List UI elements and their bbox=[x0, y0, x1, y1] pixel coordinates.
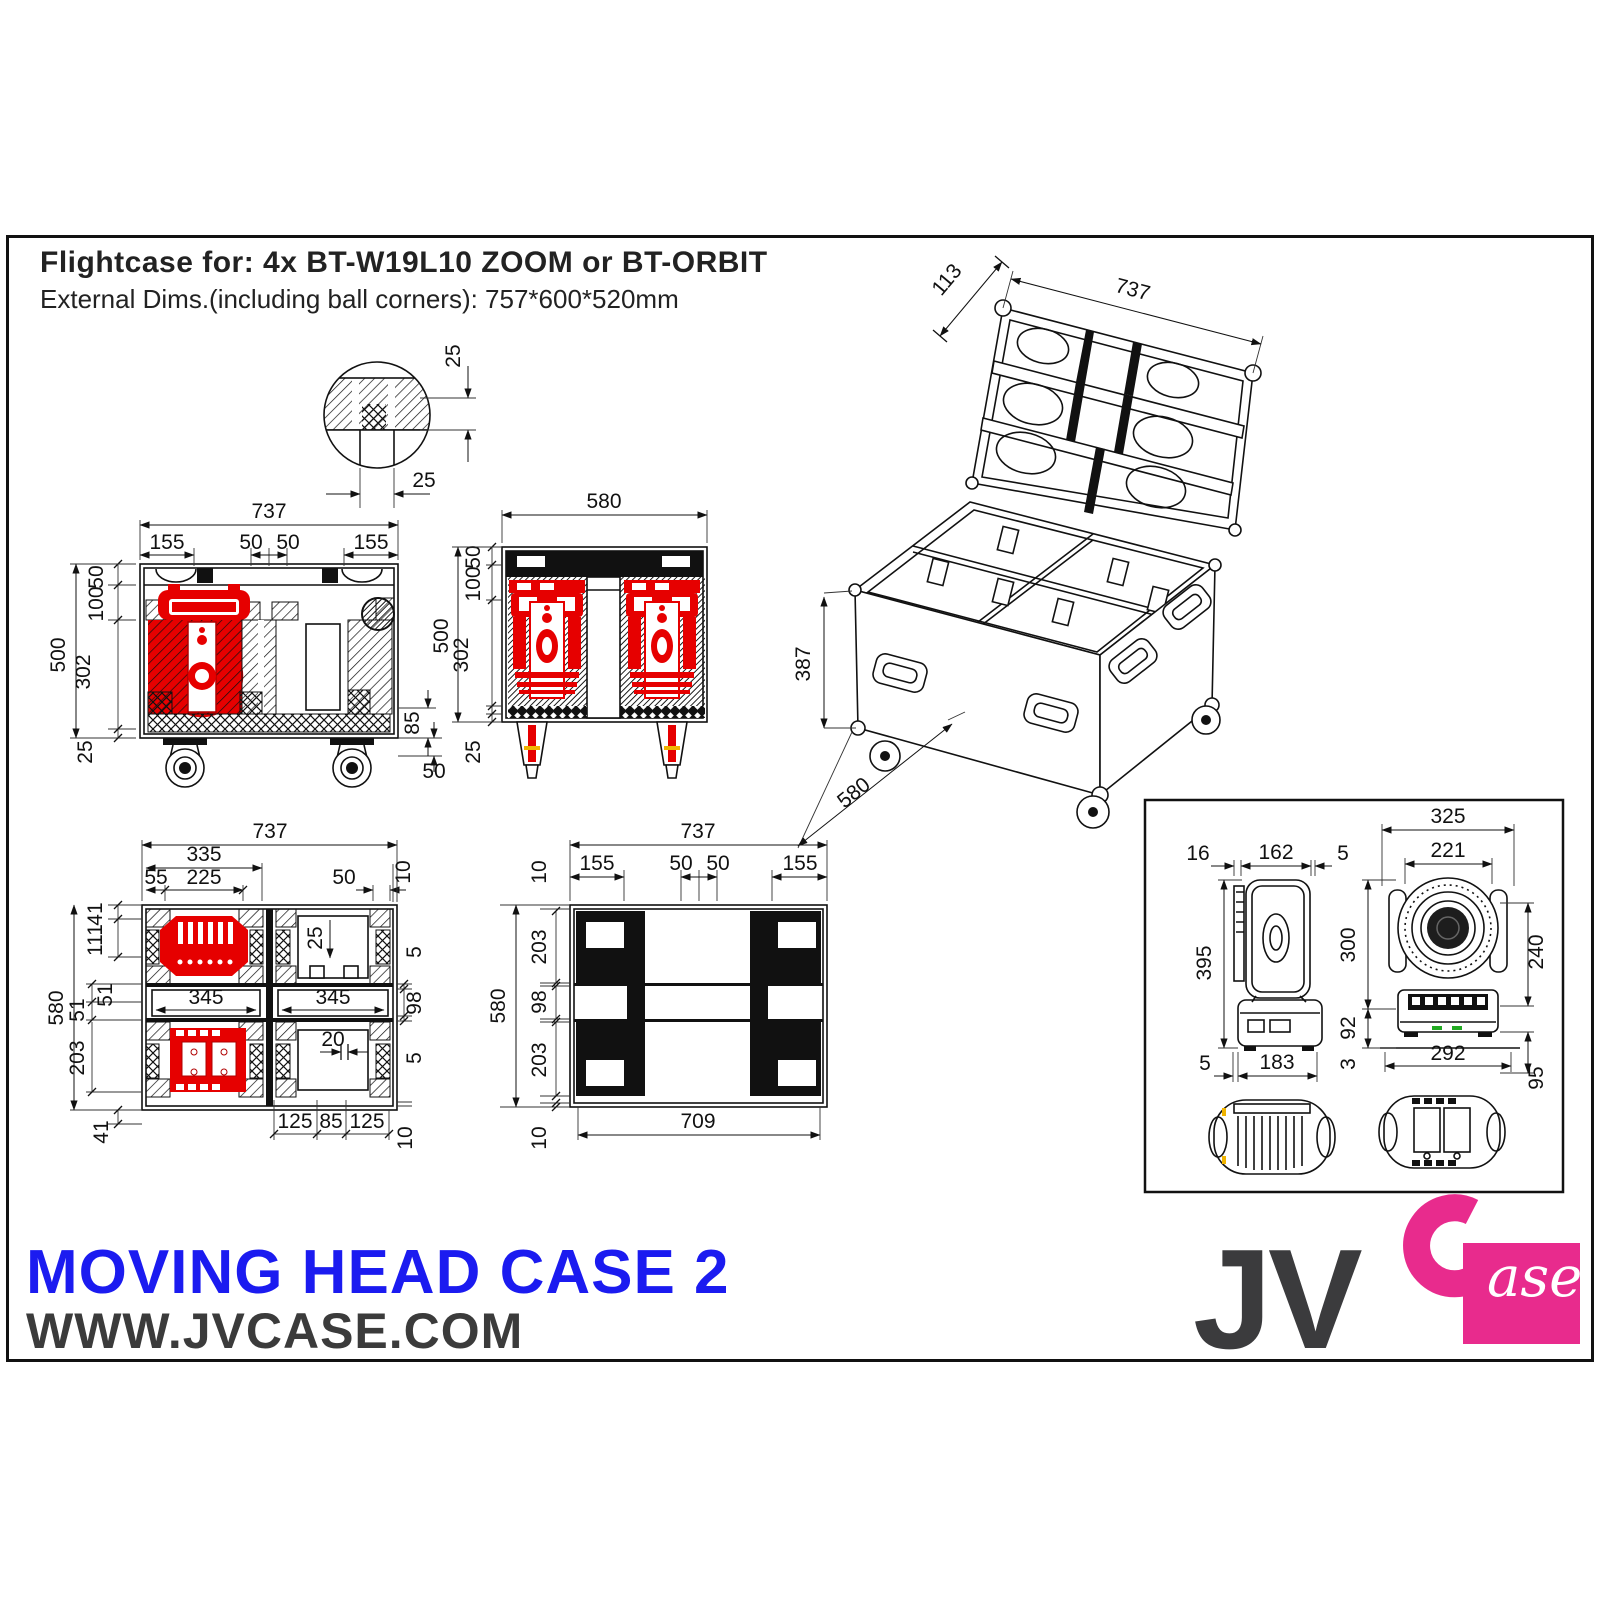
dim-label: 3 bbox=[1337, 1058, 1360, 1070]
dim-label: 10 bbox=[394, 1126, 417, 1149]
dim-label: 50 bbox=[706, 852, 729, 875]
product-title: MOVING HEAD CASE 2 bbox=[26, 1242, 730, 1304]
dim-label: 345 bbox=[188, 986, 223, 1009]
fixture-head-front bbox=[158, 584, 250, 620]
compartment-br: 20 bbox=[276, 1022, 390, 1097]
dim-label: 737 bbox=[1113, 274, 1153, 305]
plan-view: 25 345 345 bbox=[45, 820, 426, 1150]
dim-label: 98 bbox=[403, 991, 426, 1014]
dim-label: 580 bbox=[45, 990, 68, 1025]
fixture-dimension-panel: 16 162 5 395 5 183 bbox=[1145, 800, 1563, 1192]
dim-label: 113 bbox=[927, 260, 966, 300]
dim-label: 225 bbox=[186, 866, 221, 889]
dim-label: 25 bbox=[462, 740, 485, 763]
logo-jv-text: JV bbox=[1193, 1220, 1362, 1379]
dim-label: 580 bbox=[833, 773, 875, 813]
dim-label: 50 bbox=[276, 531, 299, 554]
compartment-bl bbox=[146, 1022, 263, 1097]
dim-label: 345 bbox=[315, 986, 350, 1009]
dim-label: 335 bbox=[186, 843, 221, 866]
dim-label: 395 bbox=[1193, 945, 1216, 980]
dim-label: 292 bbox=[1430, 1042, 1465, 1065]
dim-label: 25 bbox=[74, 740, 97, 763]
dim-label: 50 bbox=[462, 545, 485, 568]
dim-label: 25 bbox=[412, 469, 435, 492]
dim-label: 51 bbox=[94, 983, 117, 1006]
dim-label: 387 bbox=[792, 646, 815, 681]
dim-label: 85 bbox=[401, 711, 424, 734]
fixture-top-view bbox=[160, 916, 248, 976]
front-view: 737 155 50 50 155 50 100 302 25 500 85 bbox=[47, 500, 446, 787]
dim-label: 41 bbox=[90, 1120, 113, 1143]
dim-label: 92 bbox=[1337, 1016, 1360, 1039]
dim-label: 5 bbox=[403, 1052, 426, 1064]
dim-label: 709 bbox=[680, 1110, 715, 1133]
dim-label: 5 bbox=[1337, 842, 1349, 865]
dim-label: 203 bbox=[528, 929, 551, 964]
drawing-sheet: Flightcase for: 4x BT-W19L10 ZOOM or BT-… bbox=[0, 0, 1600, 1600]
dim-label: 98 bbox=[528, 990, 551, 1013]
dim-label: 25 bbox=[304, 926, 327, 949]
dim-label: 183 bbox=[1259, 1051, 1294, 1074]
dim-label: 203 bbox=[528, 1042, 551, 1077]
open-lid bbox=[966, 300, 1261, 536]
dim-label: 221 bbox=[1430, 839, 1465, 862]
dim-label: 50 bbox=[422, 760, 445, 783]
dim-label: 737 bbox=[251, 500, 286, 523]
dim-label: 100 bbox=[85, 586, 108, 621]
dim-label: 155 bbox=[579, 852, 614, 875]
dim-label: 16 bbox=[1186, 842, 1209, 865]
dim-label: 737 bbox=[680, 820, 715, 843]
dim-label: 125 bbox=[349, 1110, 384, 1133]
dim-label: 155 bbox=[353, 531, 388, 554]
dim-label: 41 bbox=[84, 902, 107, 925]
bottom-view: 737 155 50 50 155 10 203 98 203 10 580 7… bbox=[487, 820, 827, 1150]
dim-label: 51 bbox=[66, 998, 89, 1021]
dim-label: 155 bbox=[782, 852, 817, 875]
dim-label: 155 bbox=[149, 531, 184, 554]
dim-label: 500 bbox=[430, 618, 453, 653]
dim-label: 55 bbox=[144, 866, 167, 889]
dim-label: 10 bbox=[528, 860, 551, 883]
dim-label: 100 bbox=[462, 566, 485, 601]
dim-label: 580 bbox=[586, 490, 621, 513]
dim-label: 162 bbox=[1258, 841, 1293, 864]
dim-label: 20 bbox=[321, 1028, 344, 1051]
dim-label: 50 bbox=[332, 866, 355, 889]
dim-label: 10 bbox=[528, 1126, 551, 1149]
dim-label: 737 bbox=[252, 820, 287, 843]
dim-label: 302 bbox=[72, 654, 95, 689]
dim-label: 203 bbox=[66, 1040, 89, 1075]
jvcase-logo: JV ase bbox=[1193, 1208, 1582, 1379]
logo-ase-text: ase bbox=[1487, 1245, 1582, 1310]
dim-label: 95 bbox=[1525, 1066, 1548, 1089]
dim-label: 580 bbox=[487, 988, 510, 1023]
technical-drawing: 25 25 bbox=[0, 0, 1600, 1600]
fixture-base-top-view bbox=[170, 1028, 246, 1092]
dim-label: 325 bbox=[1430, 805, 1465, 828]
dim-label: 302 bbox=[450, 637, 473, 672]
dim-label: 111 bbox=[84, 924, 107, 956]
dim-label: 300 bbox=[1337, 927, 1360, 962]
dim-label: 125 bbox=[277, 1110, 312, 1133]
dim-label: 240 bbox=[1525, 934, 1548, 969]
perspective-view: 113 737 580 387 bbox=[792, 256, 1263, 848]
compartment-tr: 25 bbox=[276, 909, 390, 984]
foam-detail-circle: 25 25 bbox=[322, 344, 476, 508]
dim-label: 50 bbox=[239, 531, 262, 554]
sheet-footer: MOVING HEAD CASE 2 WWW.JVCASE.COM bbox=[26, 1242, 730, 1356]
dim-label: 85 bbox=[319, 1110, 342, 1133]
website-url: WWW.JVCASE.COM bbox=[26, 1306, 730, 1356]
case-body-3d bbox=[849, 502, 1221, 828]
compartment-tl bbox=[146, 909, 263, 984]
dim-label: 25 bbox=[442, 344, 465, 367]
dim-label: 50 bbox=[85, 565, 108, 588]
dim-label: 500 bbox=[47, 637, 70, 672]
dim-label: 5 bbox=[1199, 1052, 1211, 1075]
side-view: 580 50 100 302 25 500 bbox=[430, 490, 707, 778]
dim-label: 50 bbox=[669, 852, 692, 875]
dim-label: 10 bbox=[392, 860, 415, 883]
dim-label: 5 bbox=[403, 946, 426, 958]
